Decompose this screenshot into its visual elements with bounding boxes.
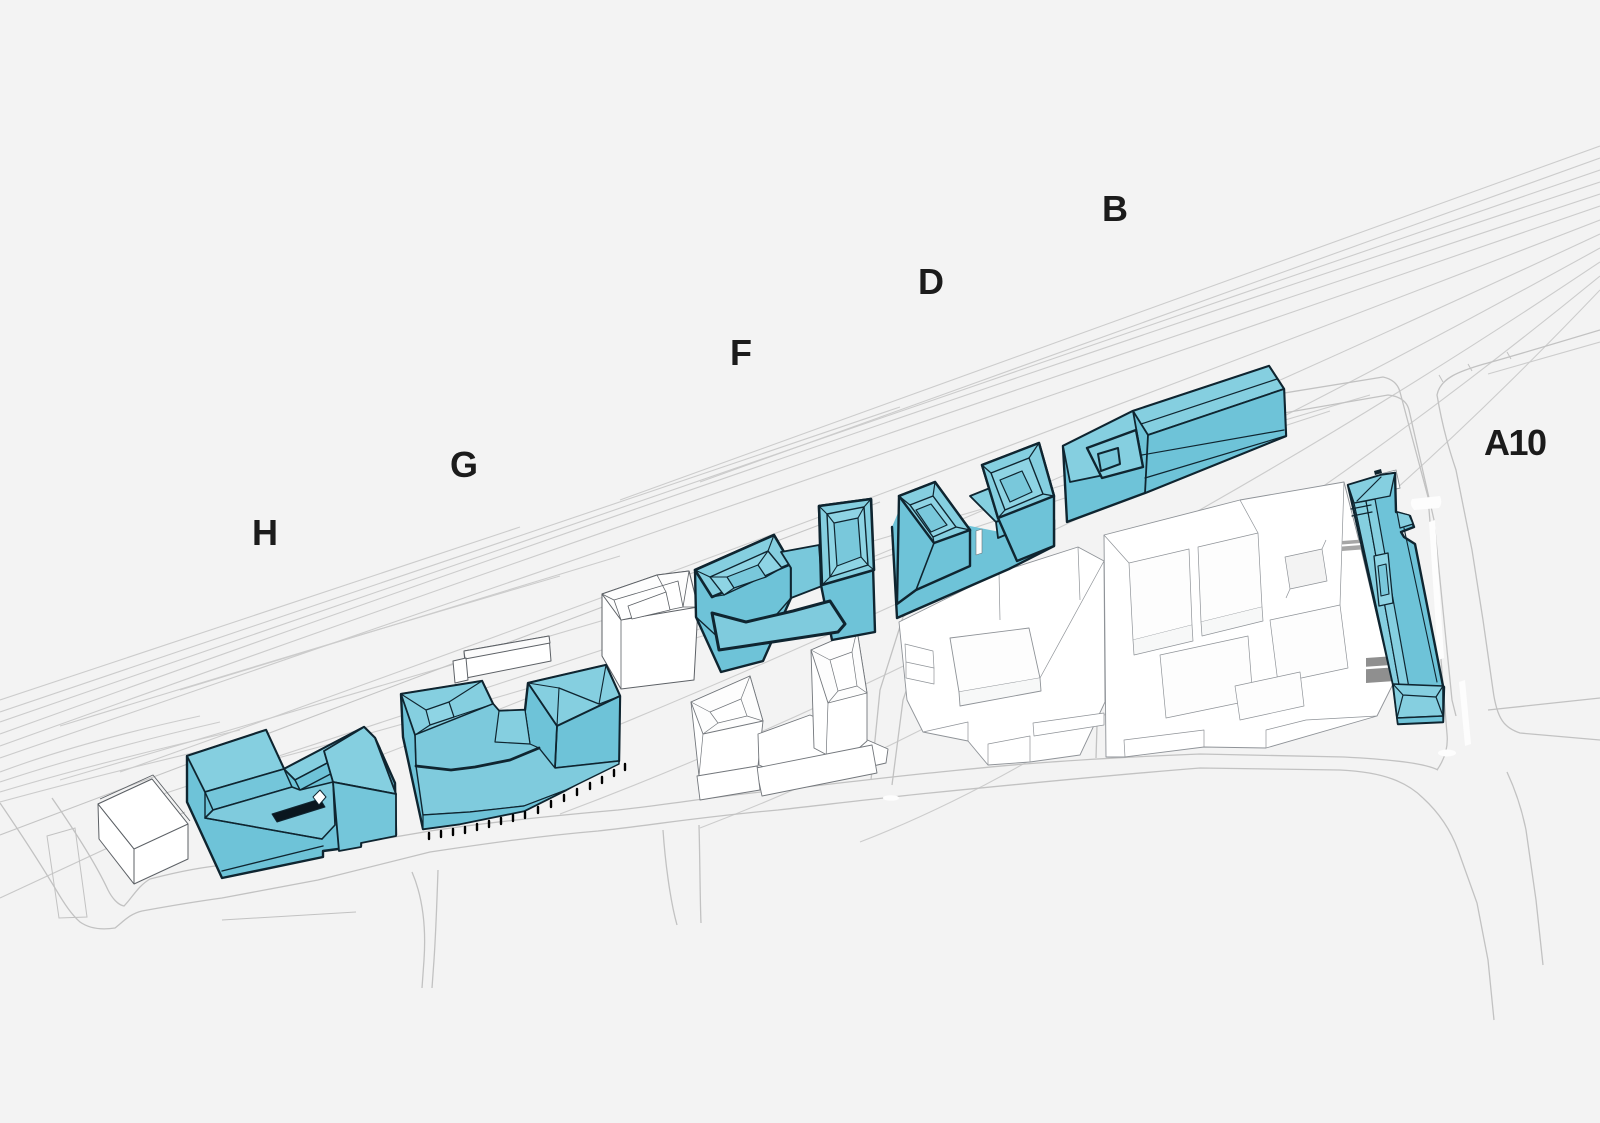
svg-text:H: H <box>252 512 278 553</box>
svg-text:B: B <box>1102 188 1128 229</box>
svg-text:D: D <box>918 261 944 302</box>
svg-text:G: G <box>450 444 478 485</box>
svg-text:F: F <box>730 332 752 373</box>
svg-text:A10: A10 <box>1484 422 1546 463</box>
